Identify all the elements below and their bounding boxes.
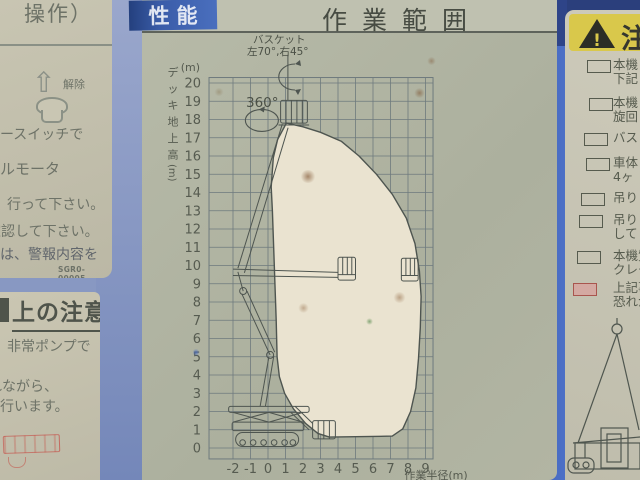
checkbox [584, 133, 608, 146]
machine-mast-inner [607, 434, 621, 462]
y-tick-label: 20 [184, 77, 201, 92]
checklist-item-text: 上記事恐れが [613, 281, 640, 309]
x-tick-label: 0 [264, 462, 272, 477]
left-operation-placard: 操作） ⇧ 解除 ースイッチで ルモータ 行って下さい。 確認して下さい。 は、… [0, 0, 112, 278]
y-tick-label: 16 [184, 150, 201, 165]
track-wheel [261, 440, 267, 446]
y-tick-label: 19 [184, 95, 201, 110]
basket-annotation-line2: 左70°,右45° [247, 45, 309, 58]
y-tick-label: 9 [193, 277, 201, 292]
checklist-item-text: 本機下記 [613, 58, 638, 86]
text-alarm-content: は、警報内容を [0, 244, 98, 264]
text-emergency-pump: 非常ポンプで [7, 336, 91, 356]
x-tick-label: 5 [351, 462, 359, 477]
y-axis-title-char: デ [168, 65, 179, 79]
x-tick-label: -2 [227, 462, 240, 477]
y-axis-title-unit: (m) [166, 164, 177, 182]
checkbox [587, 60, 611, 73]
key-switch-button-base [41, 110, 63, 123]
track-wheel [250, 440, 256, 446]
divider-line [0, 44, 112, 46]
capability-tag-label: 性能 [141, 0, 205, 31]
y-tick-label: 15 [184, 168, 201, 183]
y-tick-label: 3 [193, 387, 201, 402]
release-up-arrow-icon: ⇧ [32, 66, 55, 99]
right-warning-placard: ! 注 本機下記本機旋回バス車体4ヶ吊り吊りして本機質クレー上記事恐れが [565, 10, 640, 480]
y-tick-label: 4 [193, 369, 201, 384]
mid-arm [247, 291, 275, 352]
x-tick-label: 1 [281, 462, 289, 477]
basket-annotation-line1: バスケット [253, 34, 306, 46]
text-please-confirm: 確認して下さい。 [0, 221, 99, 241]
y-tick-label: 17 [184, 131, 201, 146]
checklist-item-text: 吊りして [613, 213, 638, 241]
x-axis-title: 作業半径(m) [404, 468, 467, 480]
checkbox [579, 215, 603, 228]
working-range-chart: -2-1012345678901234567891011121314151617… [142, 0, 557, 480]
track-wheel [282, 440, 288, 446]
x-tick-label: 7 [386, 462, 394, 477]
checklist-row: 上記事恐れが [565, 281, 640, 313]
clipped-character-block [0, 298, 9, 322]
text-performs: 行います。 [0, 396, 69, 416]
warning-header-text: 注 [621, 17, 640, 56]
y-axis-title-char: 地 [168, 116, 179, 129]
caution-heading-fragment: 上の注意 [12, 293, 100, 332]
y-axis-unit: (m) [181, 61, 200, 74]
checklist-item-text: 吊り [613, 191, 638, 205]
text-please-do: 行って下さい。 [7, 194, 104, 214]
track-wheel [583, 462, 589, 468]
machine-track [568, 458, 594, 473]
sling-line-left [578, 334, 617, 443]
left-placard-heading-fragment: 操作） [24, 0, 93, 28]
warning-header-band: ! 注 [569, 14, 640, 51]
text-cell-motor: ルモータ [0, 158, 60, 179]
placard-doc-code: SGR0-00005 [58, 265, 112, 278]
capability-tag: 性能 [129, 0, 218, 31]
track-wheel [271, 440, 277, 446]
x-tick-label: 3 [316, 462, 324, 477]
x-tick-label: 4 [334, 462, 342, 477]
checklist-row: 本機質クレー [565, 249, 640, 281]
x-tick-label: 6 [369, 462, 377, 477]
y-tick-label: 14 [184, 186, 201, 201]
text-key-switch: ースイッチで [0, 124, 83, 144]
y-tick-label: 18 [184, 113, 201, 128]
faint-red-inspection-stamp [3, 434, 61, 454]
checklist-row: 本機下記 [565, 58, 640, 90]
x-tick-label: -1 [244, 462, 257, 477]
y-axis-title-char: 上 [168, 132, 179, 145]
checklist-item-text: 本機質クレー [613, 249, 640, 277]
basket-swing-arc [279, 64, 295, 90]
y-tick-label: 0 [193, 442, 201, 457]
y-tick-label: 2 [193, 405, 201, 420]
photo-of-machine-placards: 操作） ⇧ 解除 ースイッチで ルモータ 行って下さい。 確認して下さい。 は、… [0, 0, 640, 480]
checkbox-highlighted [573, 283, 597, 296]
checklist-row: 車体4ヶ [565, 156, 640, 188]
checkbox [581, 193, 605, 206]
checkbox [586, 158, 610, 171]
sling-line-right [617, 334, 639, 430]
y-tick-label: 13 [184, 204, 201, 219]
y-tick-label: 5 [193, 350, 201, 365]
y-tick-label: 7 [193, 314, 201, 329]
warning-exclamation: ! [593, 35, 601, 48]
checklist-item-text: 車体4ヶ [613, 156, 638, 184]
lower-arm [260, 357, 269, 407]
rotation-annotation: 360° [246, 95, 279, 111]
crane-lifting-diagram [565, 310, 640, 480]
swing-arrowhead [295, 89, 301, 95]
track-wheel [240, 440, 246, 446]
checklist-item-text: バス [613, 131, 638, 145]
warning-triangle-icon: ! [579, 19, 615, 48]
y-tick-label: 12 [184, 223, 201, 238]
y-tick-label: 10 [184, 259, 201, 274]
y-tick-label: 6 [193, 332, 201, 347]
faint-red-mark [8, 457, 26, 468]
x-tick-label: 2 [299, 462, 307, 477]
checklist-row: 吊りして [565, 213, 640, 245]
checklist-row: 本機旋回 [565, 96, 640, 128]
working-range-placard: 作業範囲 -2-10123456789012345678910111213141… [142, 0, 557, 480]
checkbox [589, 98, 613, 111]
y-tick-label: 1 [193, 423, 201, 438]
track-wheel [573, 462, 579, 468]
release-label: 解除 [63, 76, 85, 92]
y-tick-label: 8 [193, 296, 201, 311]
y-axis-title-char: ッ [168, 83, 179, 96]
track-wheel [290, 440, 296, 446]
left-caution-placard: 上の注意 非常ポンプで れながら、 行います。 [0, 292, 100, 480]
y-axis-title-char: キ [168, 99, 179, 112]
checkbox [577, 251, 601, 264]
text-while-fragment: れながら、 [0, 376, 58, 396]
mid-arm [242, 294, 270, 355]
swing-arrowhead [295, 60, 301, 66]
checklist-item-text: 本機旋回 [613, 96, 638, 124]
y-tick-label: 11 [184, 241, 201, 256]
lower-arm [265, 356, 273, 407]
y-axis-title-char: 高 [168, 148, 179, 162]
crane-hook-ring [612, 324, 622, 334]
